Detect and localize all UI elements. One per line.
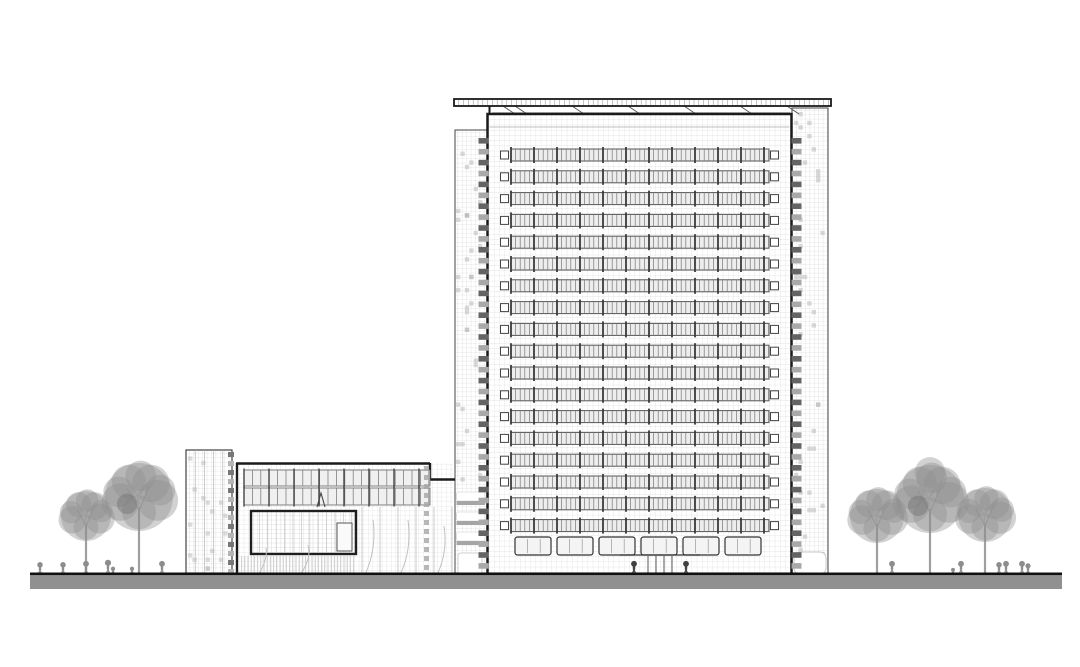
person-silhouette [60,562,66,574]
window-band [501,234,779,250]
person-silhouette [1025,563,1030,574]
right-wing-facade [792,108,828,574]
window-band [501,169,779,185]
person-silhouette [1019,561,1025,574]
window-band [501,256,779,272]
window-band [501,278,779,294]
architectural-elevation-canvas [0,0,1080,667]
person-silhouette [1003,561,1009,574]
person-silhouette [996,562,1002,574]
podium-window-band [244,469,430,488]
window-band [501,496,779,512]
window-band [501,300,779,316]
tower-facade [479,114,802,574]
podium-glass-box [251,511,356,554]
ground-band [30,576,1062,589]
window-band [501,321,779,337]
window-band [501,474,779,490]
window-band [501,343,779,359]
window-band [501,452,779,468]
podium-window-band [244,487,430,507]
window-band [501,191,779,207]
tree [102,461,179,574]
window-band [501,387,779,403]
window-band [501,212,779,228]
person-silhouette [958,561,964,574]
person-silhouette [37,562,43,574]
window-band [501,147,779,163]
podium-building [236,463,455,575]
person-silhouette [159,561,165,574]
window-band [501,409,779,425]
window-band [501,365,779,381]
person-silhouette [105,560,111,574]
window-band [501,518,779,534]
stair-core-strip [186,450,234,574]
ground [30,574,1062,589]
person-silhouette [889,561,895,574]
window-band [501,430,779,446]
tree [955,486,1016,574]
elevation-drawing [0,0,1080,667]
roof-slab [454,99,831,114]
